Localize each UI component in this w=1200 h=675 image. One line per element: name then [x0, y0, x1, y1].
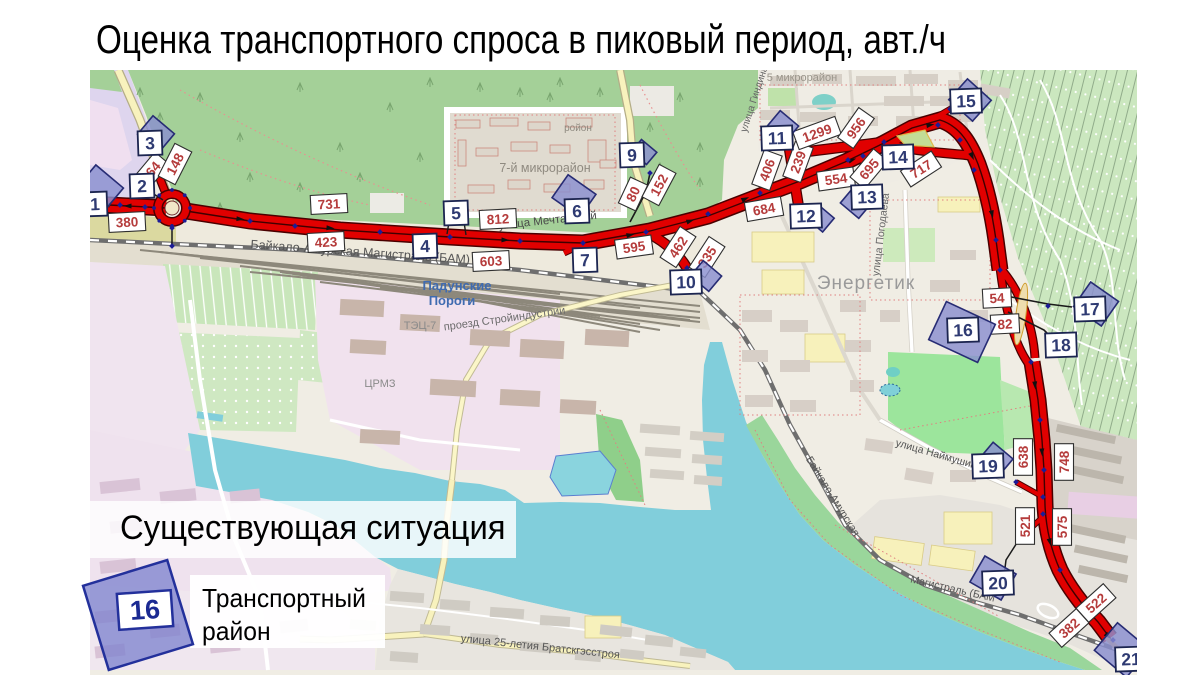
svg-text:380: 380 — [115, 214, 138, 230]
svg-text:13: 13 — [857, 187, 877, 208]
svg-text:21: 21 — [1121, 649, 1141, 670]
svg-text:14: 14 — [888, 147, 908, 168]
svg-text:9: 9 — [627, 145, 638, 165]
svg-text:16: 16 — [953, 320, 973, 341]
svg-text:2: 2 — [137, 176, 148, 196]
svg-text:4: 4 — [420, 236, 431, 256]
svg-text:19: 19 — [978, 456, 998, 477]
svg-text:3: 3 — [145, 133, 156, 153]
svg-text:17: 17 — [1080, 299, 1100, 320]
svg-text:1: 1 — [90, 194, 101, 214]
svg-text:11: 11 — [767, 128, 786, 149]
svg-text:ТЭЦ-7: ТЭЦ-7 — [404, 320, 437, 332]
svg-text:575: 575 — [1055, 515, 1070, 538]
svg-text:15: 15 — [956, 91, 976, 112]
svg-text:ройон: ройон — [564, 123, 592, 134]
svg-text:5: 5 — [451, 203, 462, 223]
svg-text:812: 812 — [486, 211, 509, 227]
svg-text:554: 554 — [824, 170, 849, 188]
svg-text:731: 731 — [317, 196, 341, 212]
svg-text:5 микрорайон: 5 микрорайон — [767, 72, 838, 84]
svg-text:16: 16 — [129, 594, 161, 626]
svg-text:638: 638 — [1016, 445, 1031, 468]
svg-text:82: 82 — [997, 316, 1013, 332]
svg-text:Падунские: Падунские — [422, 278, 491, 293]
svg-text:54: 54 — [989, 290, 1005, 306]
svg-text:748: 748 — [1057, 450, 1072, 473]
svg-text:Энергетик: Энергетик — [817, 273, 915, 294]
svg-text:12: 12 — [796, 206, 816, 227]
svg-text:20: 20 — [988, 573, 1008, 594]
svg-text:18: 18 — [1051, 335, 1071, 356]
svg-text:7-й микрорайон: 7-й микрорайон — [499, 161, 590, 175]
svg-text:Пороги: Пороги — [429, 293, 476, 308]
svg-text:521: 521 — [1018, 514, 1033, 537]
svg-text:6: 6 — [572, 201, 583, 221]
svg-text:603: 603 — [479, 253, 503, 269]
svg-text:595: 595 — [622, 238, 647, 256]
svg-text:423: 423 — [314, 234, 338, 250]
svg-text:7: 7 — [580, 250, 590, 270]
svg-text:10: 10 — [676, 272, 696, 293]
svg-text:ЦРМЗ: ЦРМЗ — [364, 378, 396, 390]
